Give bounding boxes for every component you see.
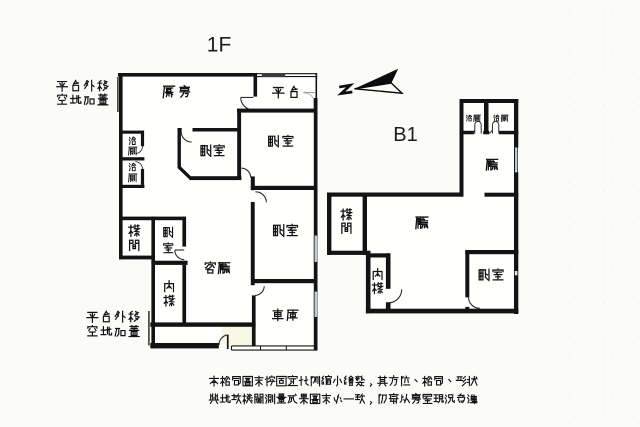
svg-text:B1: B1 <box>393 124 417 146</box>
svg-text:1F: 1F <box>207 34 232 57</box>
